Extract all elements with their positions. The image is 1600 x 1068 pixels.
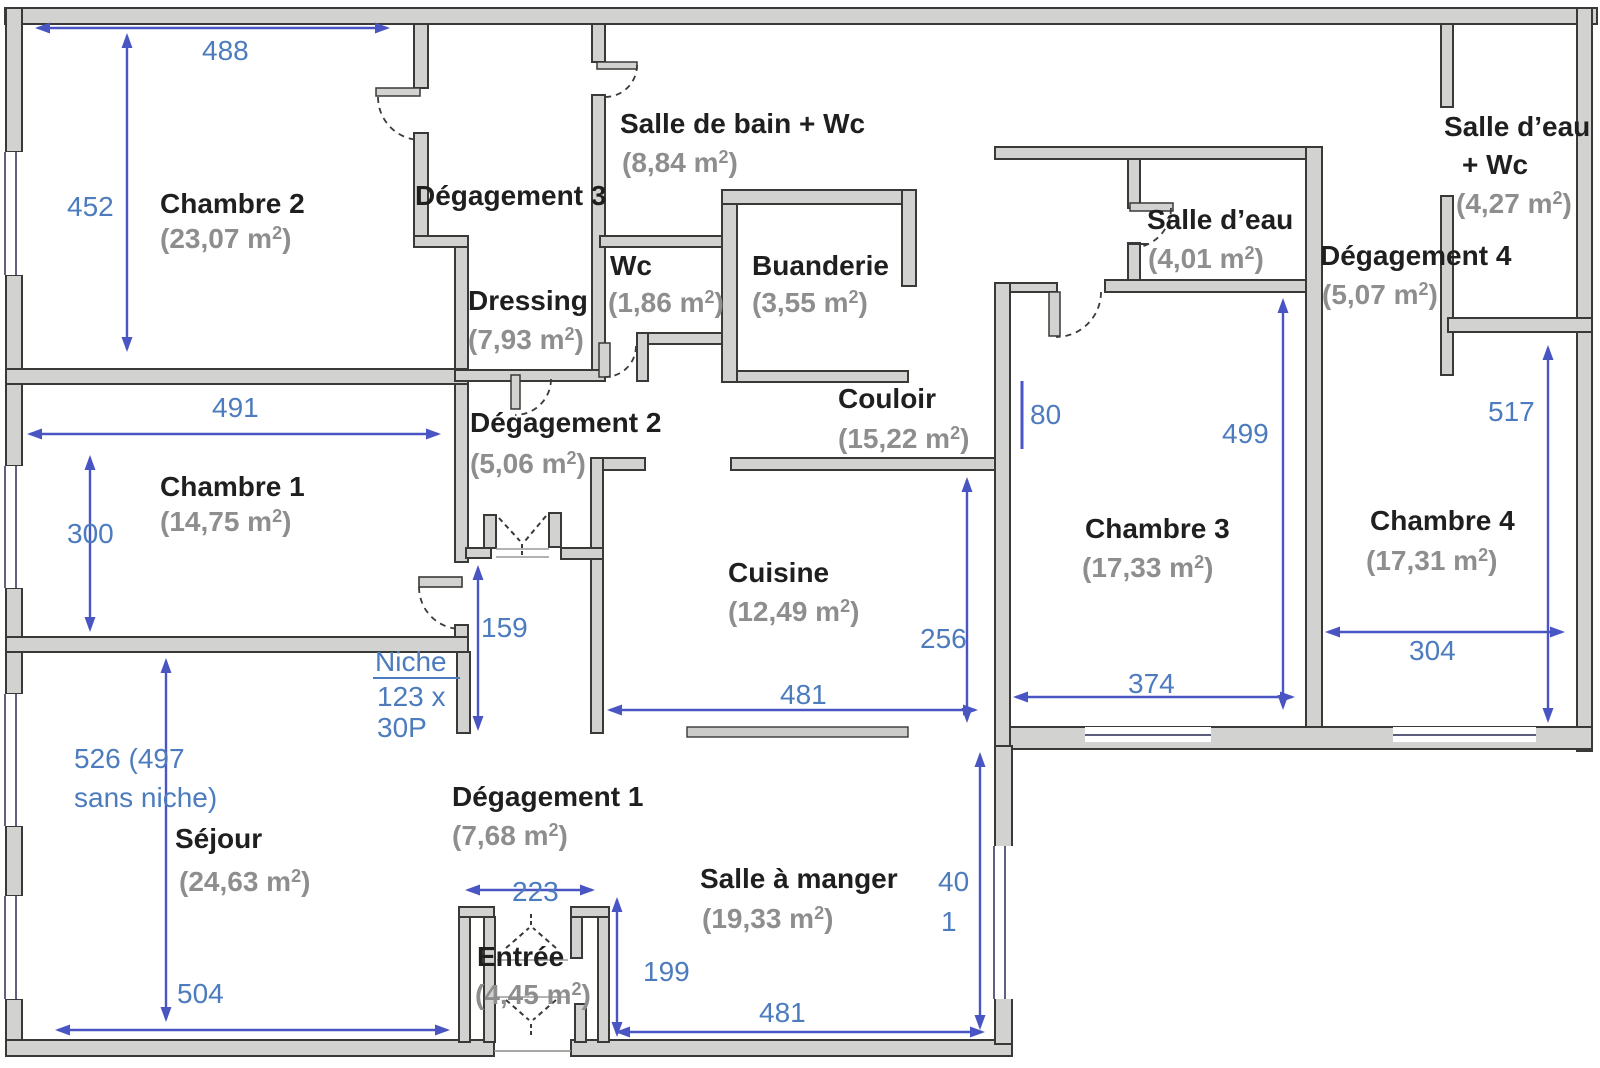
svg-text:Chambre 4: Chambre 4 — [1370, 505, 1515, 536]
svg-text:199: 199 — [643, 956, 690, 987]
svg-text:(19,33 m2): (19,33 m2) — [702, 903, 833, 934]
svg-text:Wc: Wc — [610, 250, 652, 281]
svg-text:(17,31 m2): (17,31 m2) — [1366, 545, 1497, 576]
svg-text:374: 374 — [1128, 668, 1175, 699]
svg-text:(15,22 m2): (15,22 m2) — [838, 423, 969, 454]
svg-text:300: 300 — [67, 518, 114, 549]
svg-text:123 x: 123 x — [377, 681, 446, 712]
svg-text:Chambre 2: Chambre 2 — [160, 188, 305, 219]
svg-text:452: 452 — [67, 191, 114, 222]
svg-text:Couloir: Couloir — [838, 383, 936, 414]
svg-text:(14,75 m2): (14,75 m2) — [160, 506, 291, 537]
svg-text:481: 481 — [759, 997, 806, 1028]
svg-text:80: 80 — [1030, 399, 1061, 430]
svg-text:sans niche): sans niche) — [74, 782, 217, 813]
svg-text:1: 1 — [941, 906, 957, 937]
svg-text:Séjour: Séjour — [175, 823, 262, 854]
svg-text:30P: 30P — [377, 712, 427, 743]
svg-text:499: 499 — [1222, 418, 1269, 449]
svg-text:Dégagement 2: Dégagement 2 — [470, 407, 661, 438]
svg-text:159: 159 — [481, 612, 528, 643]
svg-text:491: 491 — [212, 392, 259, 423]
svg-text:304: 304 — [1409, 635, 1456, 666]
svg-text:Dégagement 3: Dégagement 3 — [415, 180, 606, 211]
svg-text:40: 40 — [938, 866, 969, 897]
svg-text:Cuisine: Cuisine — [728, 557, 829, 588]
svg-text:Buanderie: Buanderie — [752, 250, 889, 281]
svg-text:(12,49 m2): (12,49 m2) — [728, 596, 859, 627]
svg-text:517: 517 — [1488, 396, 1535, 427]
svg-text:Salle d’eau: Salle d’eau — [1444, 111, 1590, 142]
svg-text:(17,33 m2): (17,33 m2) — [1082, 552, 1213, 583]
svg-text:Dressing: Dressing — [468, 285, 588, 316]
svg-text:Chambre 1: Chambre 1 — [160, 471, 305, 502]
svg-text:256: 256 — [920, 623, 967, 654]
svg-text:Chambre 3: Chambre 3 — [1085, 513, 1230, 544]
svg-text:526 (497: 526 (497 — [74, 743, 185, 774]
svg-text:Dégagement 1: Dégagement 1 — [452, 781, 643, 812]
svg-text:Salle à manger: Salle à manger — [700, 863, 898, 894]
svg-text:Salle d’eau: Salle d’eau — [1147, 204, 1293, 235]
svg-text:223: 223 — [512, 876, 559, 907]
svg-text:+ Wc: + Wc — [1462, 149, 1528, 180]
svg-text:Dégagement 4: Dégagement 4 — [1320, 240, 1512, 271]
svg-text:Niche: Niche — [375, 646, 447, 677]
svg-text:Salle de bain + Wc: Salle de bain + Wc — [620, 108, 865, 139]
svg-text:481: 481 — [780, 679, 827, 710]
svg-text:504: 504 — [177, 978, 224, 1009]
svg-text:Entrée: Entrée — [477, 941, 564, 972]
svg-text:(23,07 m2): (23,07 m2) — [160, 223, 291, 254]
svg-text:(24,63 m2): (24,63 m2) — [179, 866, 310, 897]
svg-text:488: 488 — [202, 35, 249, 66]
